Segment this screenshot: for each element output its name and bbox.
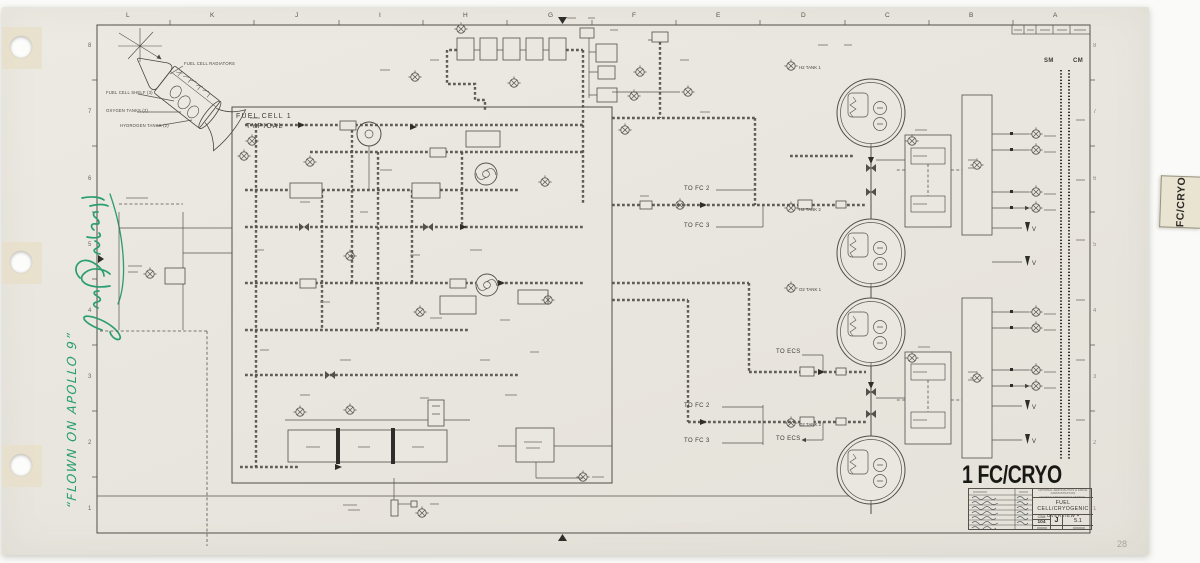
callout-fuel-cell-shelf: FUEL CELL SHELF (3): [106, 90, 153, 95]
agency-header: NATIONAL AERONAUTICS & SPACE ADMINISTRAT…: [1033, 489, 1093, 498]
zone-number: 5: [88, 242, 91, 248]
title-block-right: NATIONAL AERONAUTICS & SPACE ADMINISTRAT…: [1032, 489, 1093, 529]
v-meter-label: V: [1032, 261, 1036, 267]
flag-symbols: [237, 22, 694, 416]
zone-letter: G: [548, 12, 553, 19]
label-to-fc2: TO FC 2: [684, 186, 710, 192]
label-to-fc3: TO FC 3: [684, 438, 710, 444]
interconnect-piping: [612, 32, 866, 445]
v-meter-label: V: [1032, 439, 1036, 445]
fuel-cell-module: [100, 28, 617, 546]
drawing-title: FUEL CELL/CRYOGENIC OVERVIEW ▪: [1033, 498, 1093, 515]
label-sm: SM: [1044, 58, 1054, 64]
title-block: NATIONAL AERONAUTICS & SPACE ADMINISTRAT…: [968, 488, 1092, 530]
zone-number: 7: [88, 109, 91, 115]
callout-oxygen-tanks: OXYGEN TANKS (2): [106, 108, 148, 113]
fuel-cell-title-sub: TYPICAL: [246, 123, 284, 130]
flown-inscription: “FLOWN ON APOLLO 9”: [64, 331, 79, 509]
zone-number: 3: [1093, 374, 1096, 380]
signature: [76, 194, 124, 339]
zone-letter: F: [632, 12, 636, 19]
zone-letter: H: [463, 12, 468, 19]
tank-label: O2 TANK 1: [799, 287, 822, 292]
section-title: 1 FC/CRYO: [962, 461, 1062, 490]
zone-number: 1: [1093, 506, 1096, 512]
zone-number: 3: [88, 374, 91, 380]
sheet-strip: [1033, 525, 1093, 529]
zone-letter: I: [379, 12, 381, 19]
zone-number: 5: [1093, 242, 1096, 248]
label-cm: CM: [1073, 58, 1083, 64]
zone-number: 4: [1093, 308, 1096, 314]
label-to-fc2: TO FC 2: [684, 403, 710, 409]
tank-label: O2 TANK 2: [799, 422, 822, 427]
label-to-ecs: TO ECS: [776, 436, 801, 442]
zone-letter: L: [126, 12, 130, 19]
tank-label: H2 TANK 2: [799, 207, 821, 212]
zone-number: 7: [1093, 109, 1096, 115]
revision-table: [969, 489, 1032, 530]
scanned-schematic-sheet: FC/CRYO .l{stroke:#56544d;strok: [0, 0, 1200, 563]
cryo-tank-section: V V V V H2 TANK 1 H2 TANK 2 O2 TANK 1 O2…: [784, 59, 1069, 514]
label-to-ecs: TO ECS: [776, 349, 801, 355]
zone-number: 2: [88, 440, 91, 446]
zone-number: 6: [88, 176, 91, 182]
zone-number: 4: [88, 308, 91, 314]
zone-number: 8: [1093, 43, 1096, 49]
zone-number: 6: [1093, 176, 1096, 182]
drawing-frame: [92, 17, 1095, 541]
callout-fuel-cell-radiators: FUEL CELL RADIATORS: [184, 61, 235, 66]
zone-letter: C: [885, 12, 890, 19]
zone-letter: J: [295, 12, 298, 19]
callout-hydrogen-tanks: HYDROGEN TANKS (2): [120, 123, 169, 128]
zone-letter: A: [1053, 12, 1057, 19]
zone-letter: K: [210, 12, 214, 19]
label-to-fc3: TO FC 3: [684, 223, 710, 229]
zone-number: 1: [88, 506, 91, 512]
zone-number: 8: [88, 43, 91, 49]
zone-letter: E: [716, 12, 720, 19]
fuel-cell-title: FUEL CELL 1: [236, 113, 292, 120]
zone-letter: B: [969, 12, 973, 19]
v-meter-label: V: [1032, 227, 1036, 233]
tank-label: H2 TANK 1: [799, 65, 821, 70]
drawing-title-line1: FUEL CELL/CRYOGENIC: [1033, 500, 1093, 512]
zone-letter: D: [801, 12, 806, 19]
page-number: 28: [1117, 539, 1127, 549]
v-meter-label: V: [1032, 405, 1036, 411]
zone-number: 2: [1093, 440, 1096, 446]
